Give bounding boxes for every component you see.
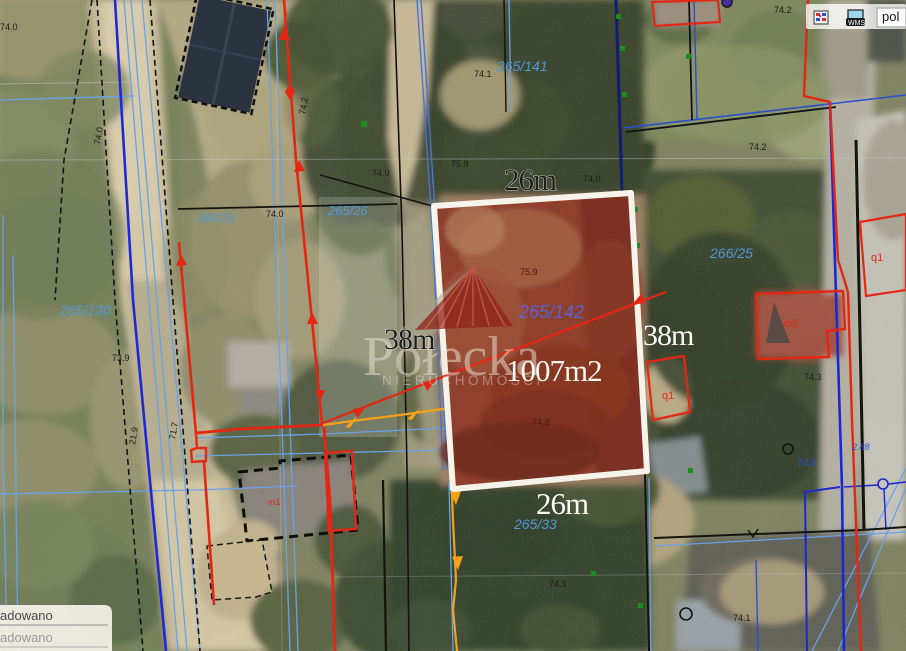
svg-text:q1: q1: [871, 252, 883, 264]
svg-text:74.1: 74.1: [733, 613, 751, 623]
svg-text:74.0: 74.0: [372, 168, 390, 178]
svg-text:74.1: 74.1: [474, 69, 492, 79]
svg-text:2.88: 2.88: [851, 442, 870, 452]
svg-text:75.9: 75.9: [451, 159, 469, 169]
svg-text:265/130: 265/130: [59, 302, 111, 318]
svg-text:m2: m2: [783, 318, 798, 330]
svg-text:74.8: 74.8: [797, 458, 817, 469]
svg-text:m1: m1: [268, 497, 281, 507]
svg-text:265/142: 265/142: [518, 302, 584, 322]
svg-text:38m: 38m: [643, 319, 694, 352]
svg-text:adowano: adowano: [0, 630, 53, 645]
svg-text:74.2: 74.2: [749, 142, 767, 152]
svg-text:pol: pol: [882, 9, 899, 24]
svg-text:1007m2: 1007m2: [506, 353, 602, 388]
svg-text:74.0: 74.0: [266, 209, 284, 219]
svg-text:q1: q1: [662, 390, 674, 402]
svg-text:265/141: 265/141: [496, 58, 548, 74]
svg-text:74.0: 74.0: [0, 22, 18, 32]
svg-text:265/26: 265/26: [327, 203, 369, 218]
svg-text:265/18: 265/18: [196, 211, 234, 225]
svg-text:74.0: 74.0: [583, 174, 601, 184]
svg-text:26m: 26m: [536, 486, 589, 521]
svg-text:38m: 38m: [384, 323, 435, 356]
svg-text:74.3: 74.3: [804, 372, 822, 382]
svg-text:75.9: 75.9: [520, 267, 538, 277]
svg-text:74.3: 74.3: [549, 579, 567, 589]
svg-text:266/25: 266/25: [709, 245, 753, 261]
svg-text:74.3: 74.3: [532, 417, 550, 427]
svg-text:adowano: adowano: [0, 608, 53, 623]
svg-text:WMS: WMS: [848, 20, 865, 27]
svg-text:74.2: 74.2: [774, 5, 792, 15]
svg-text:73.9: 73.9: [112, 353, 130, 363]
svg-text:26m: 26m: [504, 162, 557, 197]
